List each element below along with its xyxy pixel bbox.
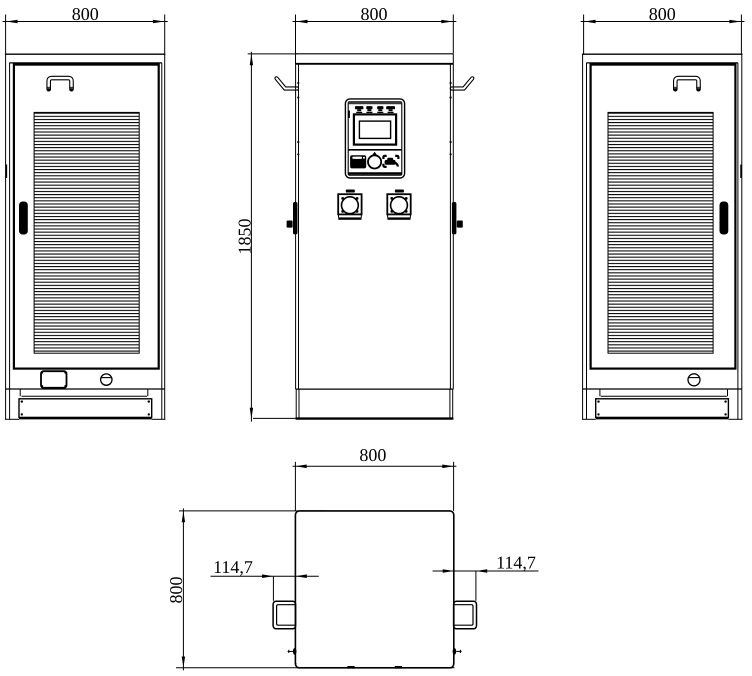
svg-text:800: 800: [649, 4, 676, 24]
svg-text:114,7: 114,7: [496, 552, 536, 572]
svg-text:800: 800: [359, 445, 386, 465]
svg-text:114,7: 114,7: [213, 557, 253, 577]
svg-text:800: 800: [166, 577, 186, 604]
svg-text:1850: 1850: [234, 218, 254, 254]
svg-text:800: 800: [72, 4, 99, 24]
svg-text:800: 800: [361, 4, 388, 24]
